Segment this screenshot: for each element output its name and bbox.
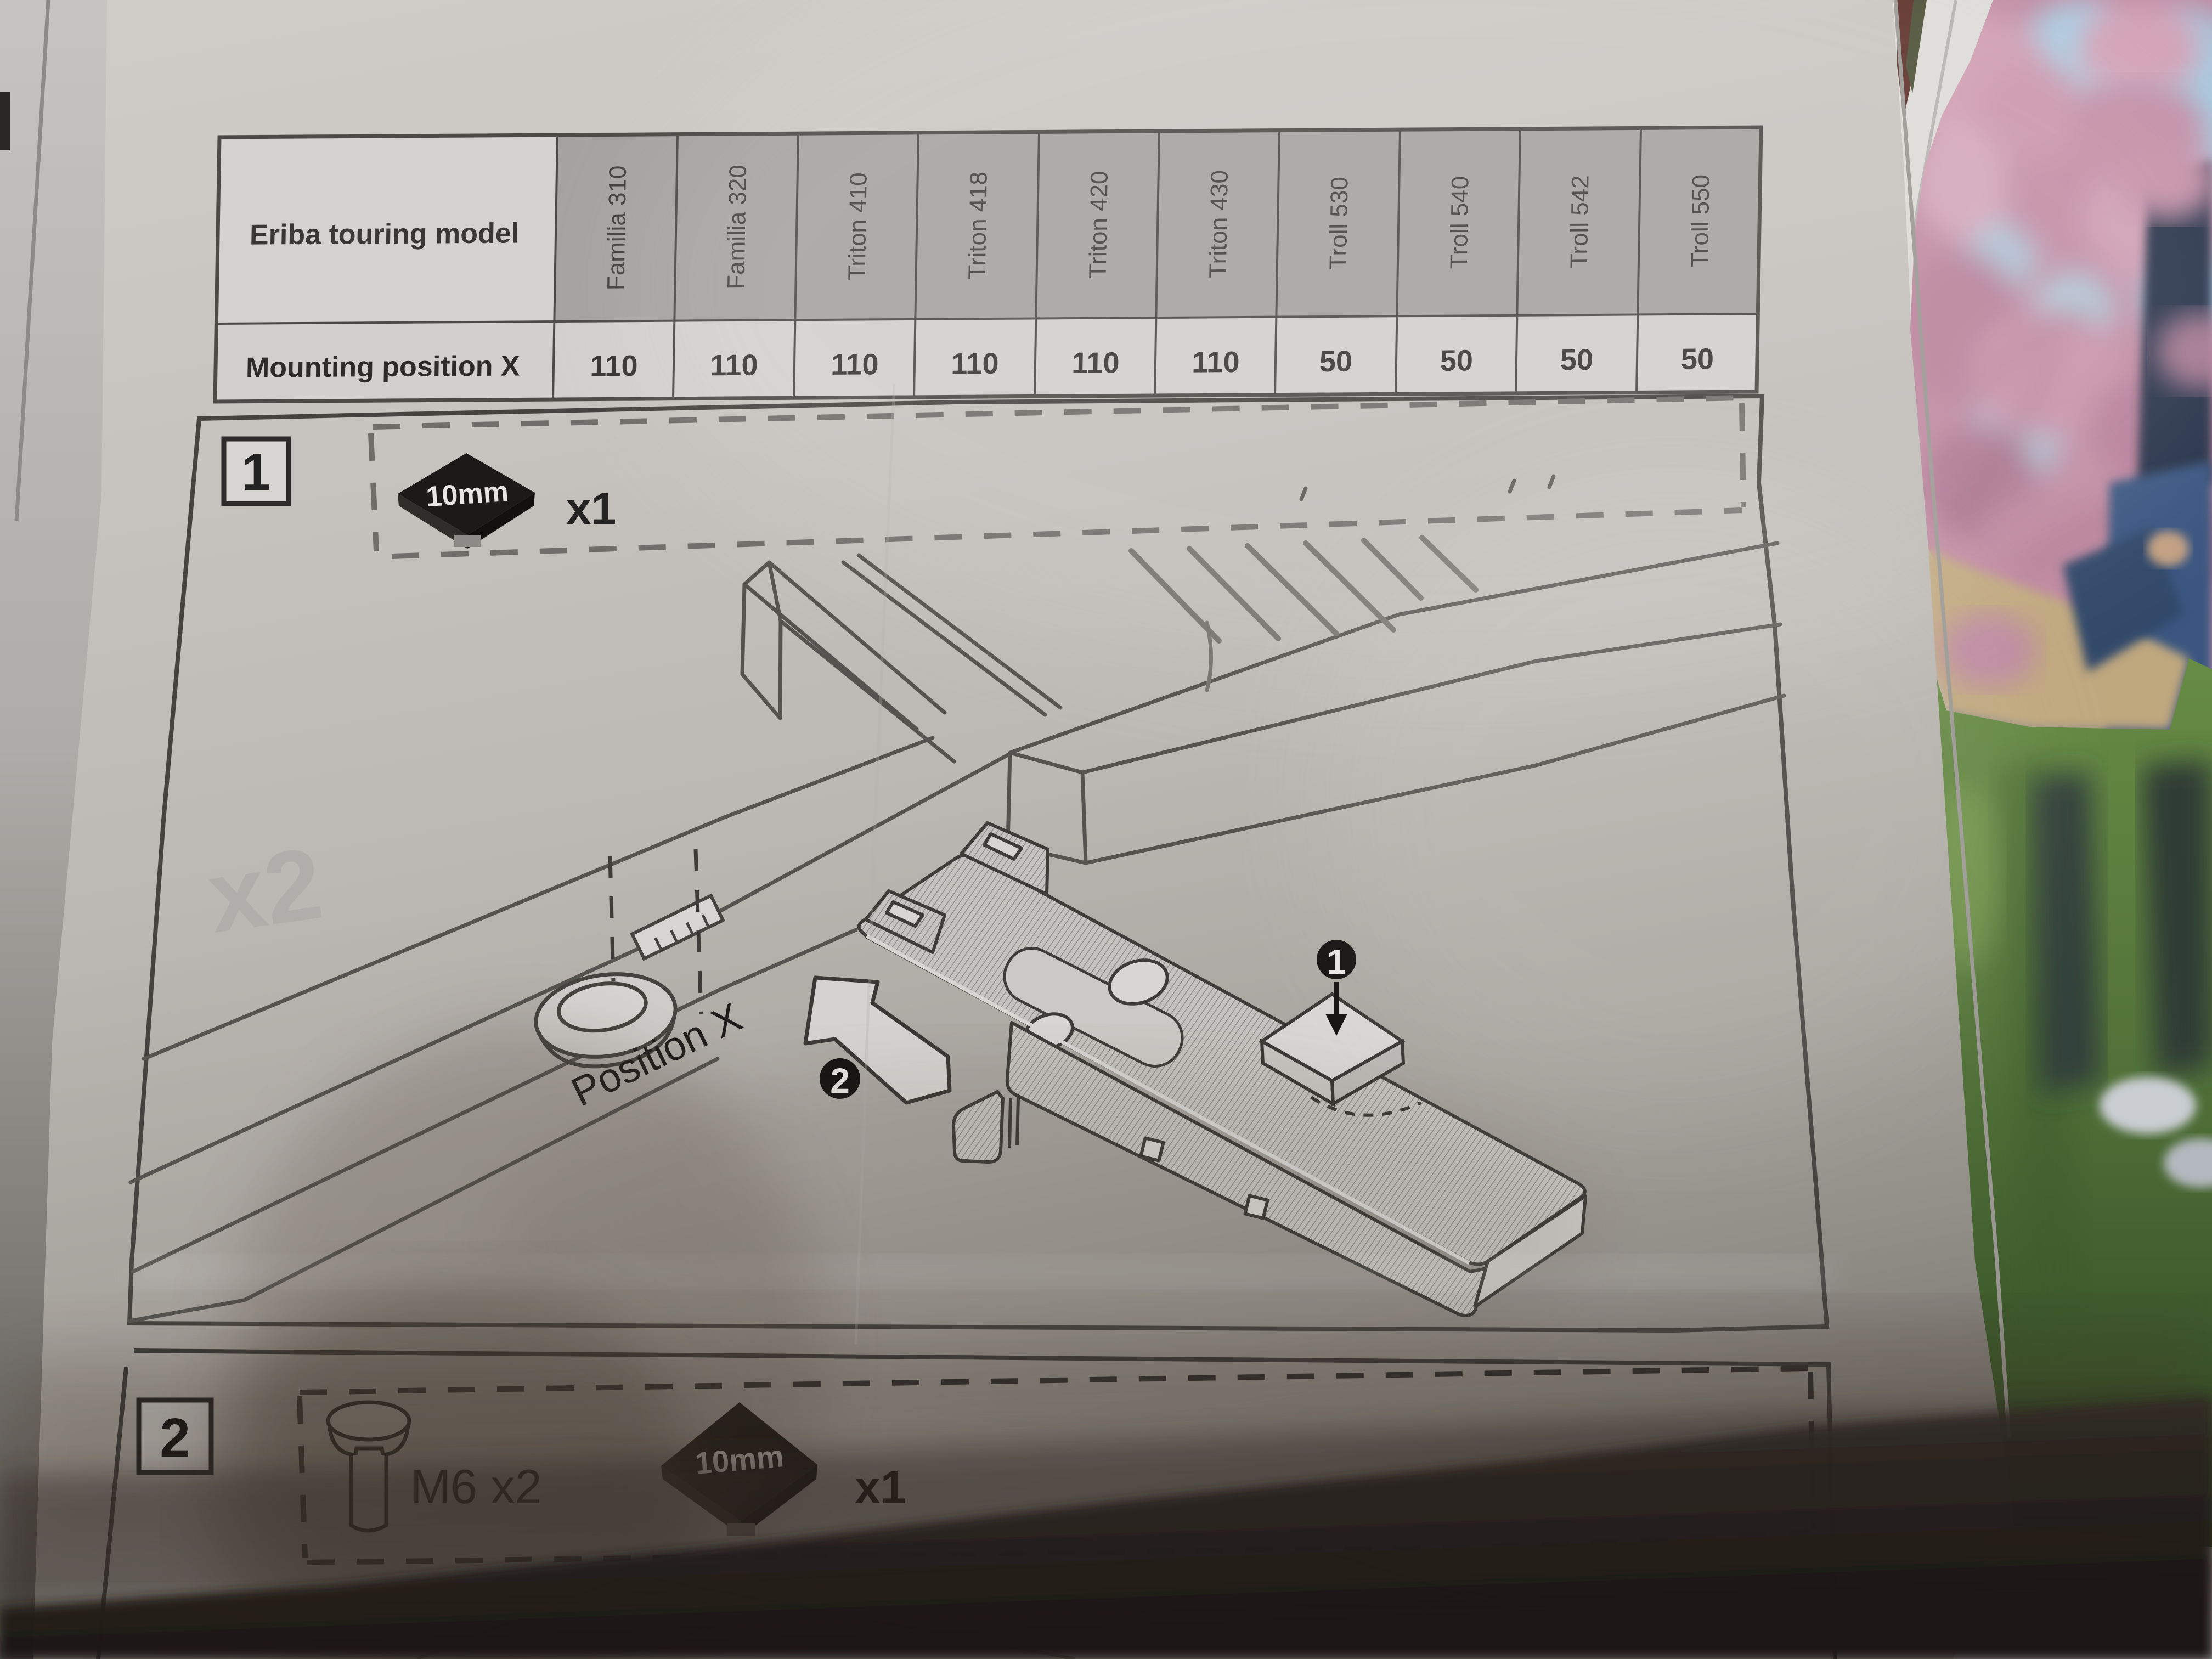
svg-text:Eriba touring model: Eriba touring model — [250, 217, 520, 251]
svg-text:Familia 310: Familia 310 — [602, 165, 631, 290]
svg-text:1: 1 — [1327, 942, 1346, 981]
svg-text:110: 110 — [590, 349, 638, 383]
svg-text:x2: x2 — [201, 827, 329, 955]
svg-text:Mounting position X: Mounting position X — [246, 350, 521, 383]
svg-text:1: 1 — [241, 443, 270, 501]
svg-text:x1: x1 — [566, 484, 616, 534]
svg-text:10mm: 10mm — [425, 476, 510, 513]
